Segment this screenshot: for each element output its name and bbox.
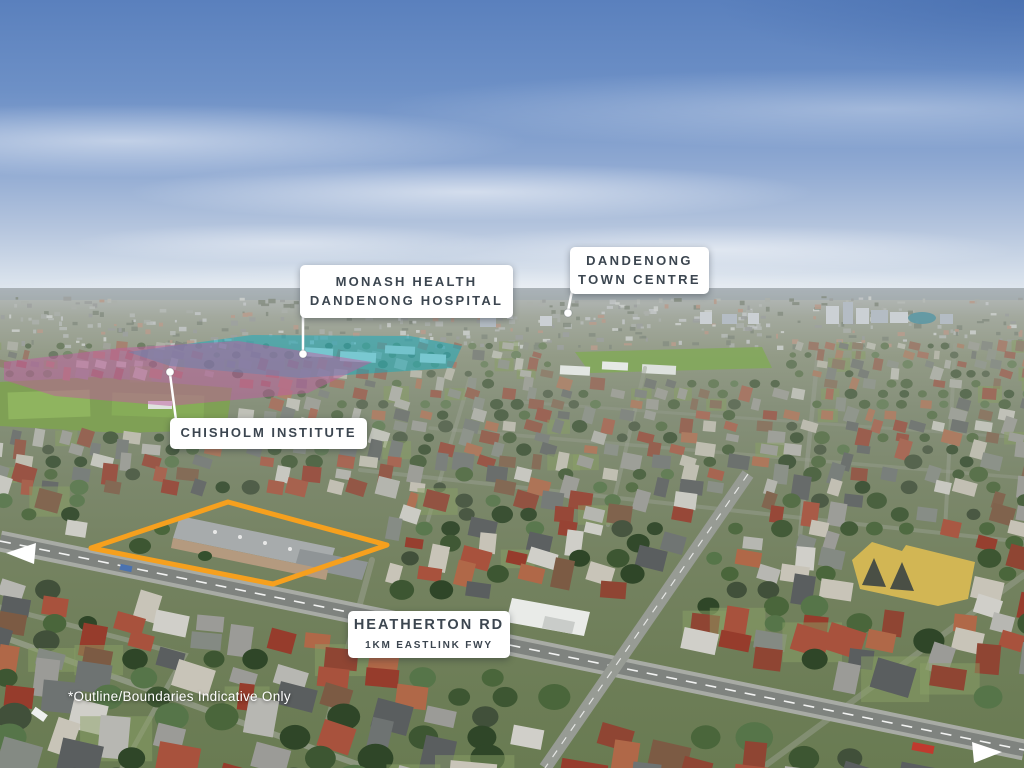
petrol-station <box>506 598 590 636</box>
aerial-map-graphics <box>0 0 1024 768</box>
label-line: MONASH HEALTH <box>300 273 513 292</box>
road-subtitle: 1KM EASTLINK FWY <box>348 639 510 654</box>
boundaries-disclaimer: *Outline/Boundaries Indicative Only <box>68 689 291 704</box>
aerial-photo-scene: MONASH HEALTH DANDENONG HOSPITAL DANDENO… <box>0 0 1024 768</box>
label-monash-health-hospital: MONASH HEALTH DANDENONG HOSPITAL <box>300 265 513 318</box>
label-heatherton-rd: HEATHERTON RD 1KM EASTLINK FWY <box>348 611 510 658</box>
road-name: HEATHERTON RD <box>348 615 510 636</box>
label-line: TOWN CENTRE <box>570 271 709 290</box>
label-dandenong-town-centre: DANDENONG TOWN CENTRE <box>570 247 709 294</box>
label-line: DANDENONG HOSPITAL <box>300 292 513 311</box>
label-line: DANDENONG <box>570 252 709 271</box>
label-chisholm-institute: CHISHOLM INSTITUTE <box>170 418 367 449</box>
yellow-church-building <box>852 542 975 606</box>
label-line: CHISHOLM INSTITUTE <box>170 424 367 443</box>
